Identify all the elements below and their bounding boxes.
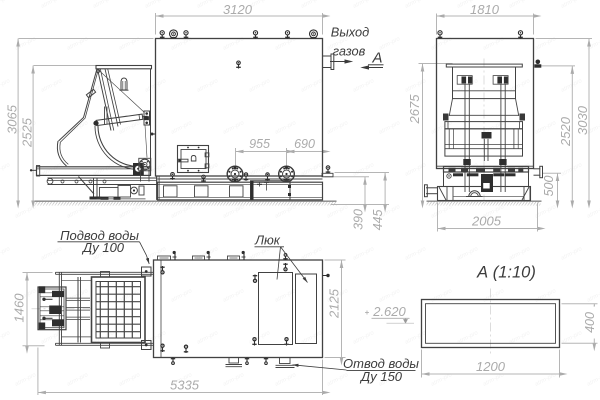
svg-text:690: 690 [294,137,315,151]
svg-text:390: 390 [352,209,366,230]
svg-text:газов: газов [333,44,366,59]
svg-text:2675: 2675 [407,94,422,125]
svg-text:400: 400 [583,312,597,333]
svg-text:955: 955 [249,137,270,151]
svg-text:1200: 1200 [476,359,506,374]
svg-text:3120: 3120 [223,2,253,17]
svg-text:445: 445 [371,210,385,231]
svg-text:Люк: Люк [254,233,281,248]
svg-text:2005: 2005 [471,214,502,229]
svg-text:3065: 3065 [5,104,20,134]
svg-text:1810: 1810 [470,2,500,17]
svg-text:2125: 2125 [327,288,342,319]
svg-text:А: А [371,50,382,67]
svg-text:1460: 1460 [12,293,27,323]
svg-text:Выход: Выход [331,25,369,40]
svg-text:Ду 150: Ду 150 [359,369,403,384]
svg-text:5335: 5335 [170,378,200,393]
svg-text:500: 500 [542,176,556,197]
svg-text:2525: 2525 [20,117,35,148]
svg-text:2.620: 2.620 [372,304,406,319]
svg-text:3030: 3030 [575,105,590,135]
svg-text:2520: 2520 [558,116,573,147]
svg-text:А (1:10): А (1:10) [476,264,536,282]
